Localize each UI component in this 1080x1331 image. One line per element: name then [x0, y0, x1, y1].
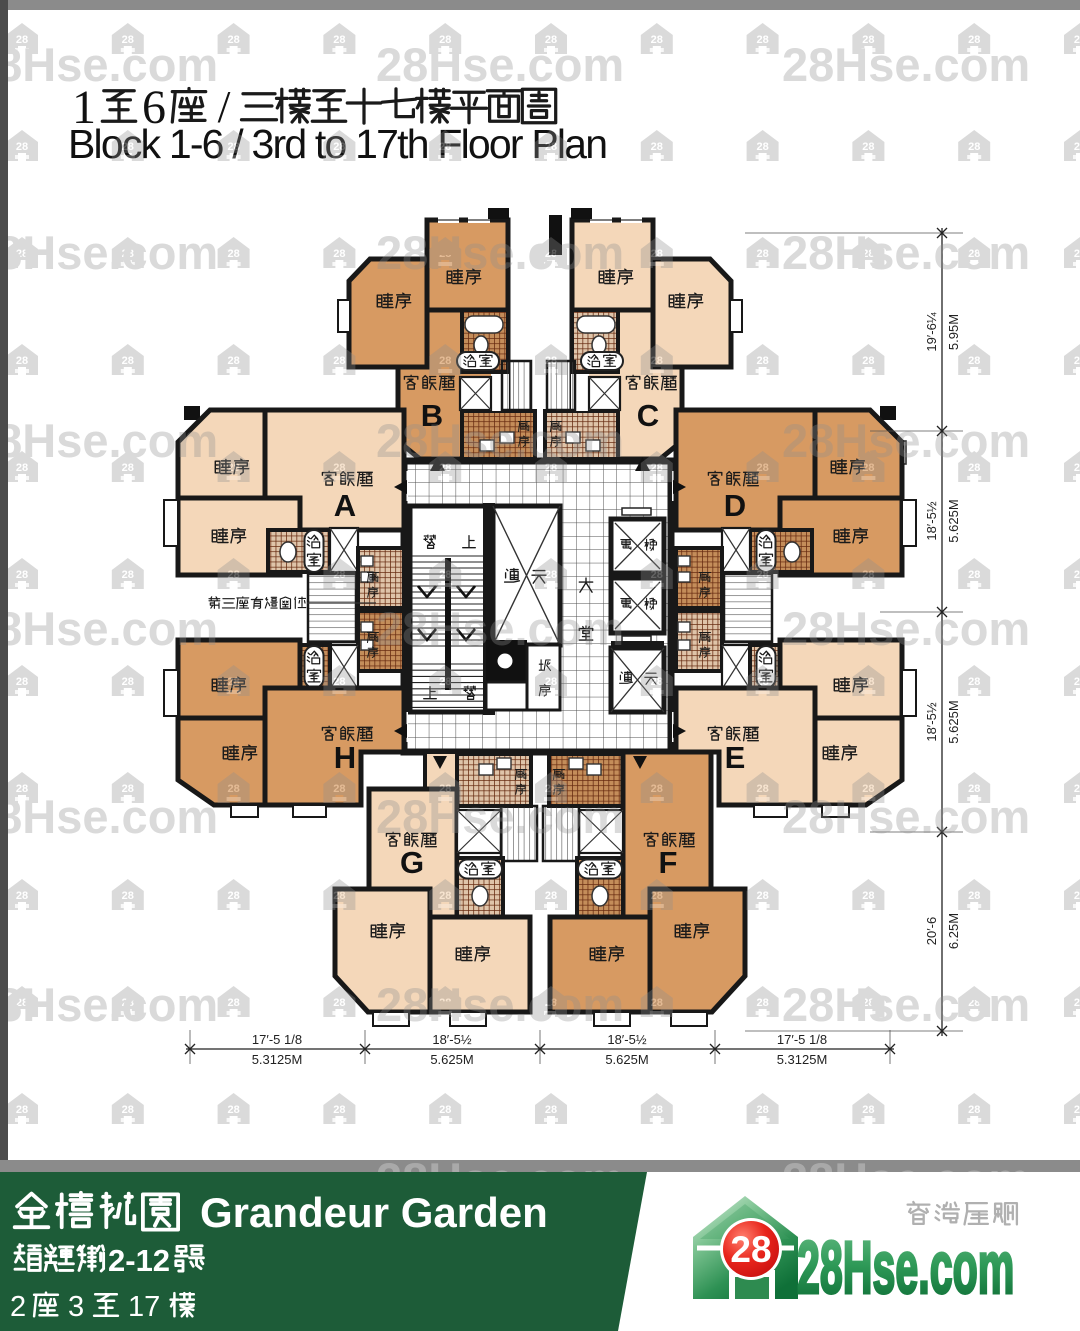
- svg-text:28: 28: [439, 355, 451, 367]
- svg-text:28: 28: [651, 997, 663, 1009]
- svg-text:28: 28: [122, 355, 134, 367]
- svg-text:28: 28: [439, 1104, 451, 1116]
- svg-text:C: C: [637, 398, 659, 433]
- svg-text:28: 28: [439, 141, 451, 153]
- svg-text:28: 28: [651, 1104, 663, 1116]
- svg-text:28: 28: [227, 890, 239, 902]
- svg-text:28Hse.com: 28Hse.com: [0, 414, 218, 467]
- svg-text:28Hse.com: 28Hse.com: [0, 790, 218, 843]
- svg-text:28: 28: [227, 783, 239, 795]
- svg-text:28: 28: [756, 1104, 768, 1116]
- svg-text:28: 28: [862, 676, 874, 688]
- svg-text:28Hse.com: 28Hse.com: [376, 602, 624, 655]
- svg-text:3: 3: [68, 1291, 84, 1323]
- svg-text:28: 28: [16, 676, 28, 688]
- svg-text:28Hse.com: 28Hse.com: [376, 790, 624, 843]
- svg-text:28: 28: [545, 1104, 557, 1116]
- svg-text:28: 28: [756, 997, 768, 1009]
- svg-text:5.625M: 5.625M: [430, 1052, 473, 1067]
- svg-text:20′-6: 20′-6: [924, 917, 939, 945]
- svg-text:28: 28: [545, 569, 557, 581]
- svg-text:28: 28: [968, 569, 980, 581]
- svg-text:17: 17: [128, 1291, 160, 1323]
- svg-text:18′-5½: 18′-5½: [607, 1032, 646, 1047]
- svg-text:28: 28: [122, 890, 134, 902]
- svg-text:28: 28: [333, 34, 345, 46]
- svg-text:28: 28: [651, 462, 663, 474]
- svg-text:6.25M: 6.25M: [946, 913, 961, 949]
- svg-text:28: 28: [122, 676, 134, 688]
- svg-text:28: 28: [651, 355, 663, 367]
- svg-text:28Hse.com: 28Hse.com: [782, 978, 1030, 1031]
- svg-text:28Hse.com: 28Hse.com: [376, 978, 624, 1031]
- svg-text:28: 28: [756, 783, 768, 795]
- svg-text:28: 28: [333, 569, 345, 581]
- svg-text:28: 28: [862, 569, 874, 581]
- svg-text:28: 28: [1074, 34, 1080, 46]
- svg-text:28: 28: [333, 248, 345, 260]
- svg-text:28: 28: [862, 1104, 874, 1116]
- svg-text:28: 28: [651, 569, 663, 581]
- svg-text:28: 28: [227, 355, 239, 367]
- svg-text:28: 28: [122, 569, 134, 581]
- svg-text:28: 28: [545, 141, 557, 153]
- svg-text:28: 28: [1074, 890, 1080, 902]
- svg-text:28: 28: [1074, 248, 1080, 260]
- svg-text:28: 28: [651, 141, 663, 153]
- svg-text:28: 28: [439, 890, 451, 902]
- svg-text:28: 28: [333, 997, 345, 1009]
- svg-text:28: 28: [651, 890, 663, 902]
- svg-text:5.625M: 5.625M: [946, 700, 961, 743]
- svg-text:28: 28: [122, 141, 134, 153]
- svg-text:28: 28: [968, 141, 980, 153]
- svg-text:28: 28: [333, 890, 345, 902]
- svg-text:28: 28: [227, 676, 239, 688]
- svg-text:28: 28: [16, 355, 28, 367]
- svg-text:G: G: [400, 845, 424, 880]
- svg-text:28: 28: [16, 1104, 28, 1116]
- svg-text:28Hse.com: 28Hse.com: [782, 790, 1030, 843]
- svg-text:28: 28: [333, 141, 345, 153]
- svg-text:28Hse.com: 28Hse.com: [797, 1227, 1014, 1309]
- svg-text:28: 28: [16, 890, 28, 902]
- svg-text:28: 28: [756, 462, 768, 474]
- svg-text:28: 28: [122, 1104, 134, 1116]
- svg-text:28: 28: [333, 676, 345, 688]
- svg-text:5.625M: 5.625M: [946, 499, 961, 542]
- svg-text:28: 28: [1074, 676, 1080, 688]
- svg-text:28: 28: [968, 890, 980, 902]
- svg-text:28: 28: [1074, 997, 1080, 1009]
- svg-text:5.95M: 5.95M: [946, 314, 961, 350]
- svg-text:18′-5½: 18′-5½: [924, 702, 939, 741]
- svg-text:28: 28: [227, 141, 239, 153]
- svg-text:28: 28: [651, 34, 663, 46]
- svg-text:28: 28: [968, 676, 980, 688]
- svg-text:18′-5½: 18′-5½: [432, 1032, 471, 1047]
- svg-text:5.3125M: 5.3125M: [777, 1052, 828, 1067]
- svg-text:28: 28: [756, 355, 768, 367]
- svg-text:28: 28: [756, 676, 768, 688]
- svg-text:28: 28: [227, 569, 239, 581]
- svg-text:28Hse.com: 28Hse.com: [376, 414, 624, 467]
- svg-text:28Hse.com: 28Hse.com: [376, 38, 624, 91]
- svg-text:28: 28: [333, 1104, 345, 1116]
- svg-text:A: A: [334, 488, 356, 523]
- svg-text:H: H: [334, 740, 356, 775]
- svg-text:28: 28: [862, 355, 874, 367]
- svg-text:28Hse.com: 28Hse.com: [0, 978, 218, 1031]
- svg-text:28: 28: [968, 355, 980, 367]
- svg-text:28: 28: [227, 462, 239, 474]
- svg-text:28: 28: [16, 569, 28, 581]
- svg-text:28Hse.com: 28Hse.com: [782, 38, 1030, 91]
- svg-text:Grandeur Garden: Grandeur Garden: [200, 1189, 548, 1236]
- svg-text:17′-5 1/8: 17′-5 1/8: [777, 1032, 827, 1047]
- svg-text:28Hse.com: 28Hse.com: [0, 602, 218, 655]
- svg-text:28Hse.com: 28Hse.com: [782, 226, 1030, 279]
- svg-text:2: 2: [10, 1291, 26, 1323]
- svg-text:28: 28: [545, 890, 557, 902]
- svg-text:28: 28: [545, 676, 557, 688]
- svg-text:2-12: 2-12: [108, 1243, 170, 1278]
- svg-text:28Hse.com: 28Hse.com: [376, 226, 624, 279]
- svg-text:28Hse.com: 28Hse.com: [0, 38, 218, 91]
- svg-text:28Hse.com: 28Hse.com: [0, 226, 218, 279]
- svg-text:28: 28: [756, 890, 768, 902]
- svg-text:28: 28: [333, 462, 345, 474]
- svg-text:28: 28: [756, 569, 768, 581]
- svg-text:28: 28: [227, 34, 239, 46]
- svg-text:28: 28: [227, 1104, 239, 1116]
- svg-text:5.3125M: 5.3125M: [252, 1052, 303, 1067]
- svg-text:28: 28: [968, 1104, 980, 1116]
- svg-text:28: 28: [439, 569, 451, 581]
- svg-text:28: 28: [439, 676, 451, 688]
- svg-text:28: 28: [862, 141, 874, 153]
- svg-text:28: 28: [862, 890, 874, 902]
- svg-text:28: 28: [756, 141, 768, 153]
- svg-text:28: 28: [756, 34, 768, 46]
- svg-text:28: 28: [1074, 462, 1080, 474]
- svg-text:28: 28: [333, 355, 345, 367]
- svg-text:28: 28: [227, 248, 239, 260]
- svg-text:18′-5½: 18′-5½: [924, 501, 939, 540]
- svg-text:28Hse.com: 28Hse.com: [782, 414, 1030, 467]
- svg-text:28: 28: [227, 997, 239, 1009]
- svg-text:19′-6¼: 19′-6¼: [924, 312, 939, 351]
- svg-text:28: 28: [651, 676, 663, 688]
- svg-text:28: 28: [333, 783, 345, 795]
- svg-text:28: 28: [1074, 1104, 1080, 1116]
- svg-text:E: E: [725, 740, 746, 775]
- svg-text:17′-5 1/8: 17′-5 1/8: [252, 1032, 302, 1047]
- svg-text:28: 28: [1074, 569, 1080, 581]
- svg-text:28: 28: [651, 248, 663, 260]
- svg-text:28: 28: [651, 783, 663, 795]
- svg-text:28Hse.com: 28Hse.com: [782, 602, 1030, 655]
- svg-text:28: 28: [730, 1229, 771, 1270]
- svg-text:F: F: [659, 845, 678, 880]
- svg-text:5.625M: 5.625M: [605, 1052, 648, 1067]
- svg-text:28: 28: [16, 141, 28, 153]
- svg-text:28: 28: [756, 248, 768, 260]
- svg-text:28: 28: [1074, 355, 1080, 367]
- svg-text:28: 28: [1074, 783, 1080, 795]
- svg-text:D: D: [724, 488, 746, 523]
- svg-text:28: 28: [545, 355, 557, 367]
- svg-text:28: 28: [1074, 141, 1080, 153]
